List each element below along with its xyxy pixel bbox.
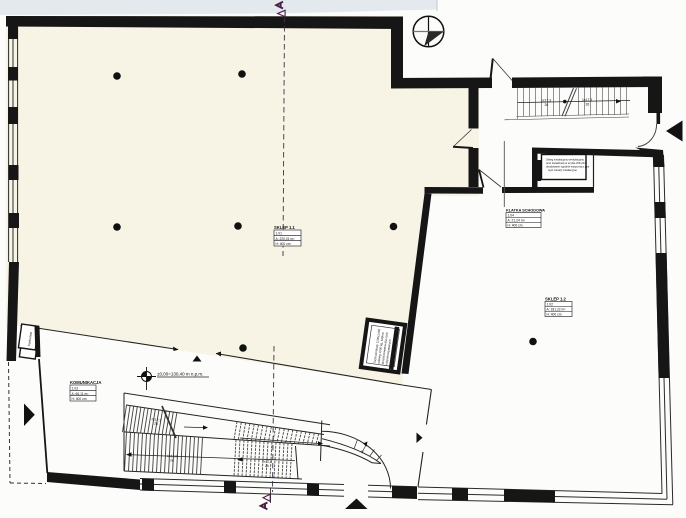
svg-text:KOMUNIKACJA: KOMUNIKACJA xyxy=(70,380,101,385)
svg-text:A: 21,24 m²: A: 21,24 m² xyxy=(508,219,526,223)
svg-text:1.02: 1.02 xyxy=(547,303,554,307)
svg-text:A: 181,22 m²: A: 181,22 m² xyxy=(547,308,567,312)
svg-text:A: 220,01 m²: A: 220,01 m² xyxy=(276,237,296,241)
svg-text:SKLEP 1.1: SKLEP 1.1 xyxy=(274,225,296,230)
svg-text:H: 400 cm: H: 400 cm xyxy=(276,242,291,246)
svg-text:26: 26 xyxy=(265,464,269,468)
svg-text:26: 26 xyxy=(586,103,590,107)
svg-text:1.04: 1.04 xyxy=(508,214,515,218)
svg-text:1.01: 1.01 xyxy=(276,232,283,236)
svg-text:26: 26 xyxy=(545,103,549,107)
svg-text:1x17,3: 1x17,3 xyxy=(541,99,551,103)
svg-text:SKLEP 1.2: SKLEP 1.2 xyxy=(545,297,567,302)
svg-text:A: 66,11 m²: A: 66,11 m² xyxy=(72,392,90,396)
svg-text:obudowane zgodnie wytyczna p.p: obudowane zgodnie wytyczna p.poz xyxy=(546,165,590,169)
svg-text:26: 26 xyxy=(154,422,158,427)
svg-text:oraz kanalizacji w szybie WK-2: oraz kanalizacji w szybie WK-20.0 xyxy=(546,161,587,165)
svg-text:26: 26 xyxy=(170,459,174,463)
svg-text:KLATKA SCHODOWA: KLATKA SCHODOWA xyxy=(506,209,545,213)
svg-text:1x17,3: 1x17,3 xyxy=(582,98,592,102)
svg-text:wyd. kanaly instalacyjne: wyd. kanaly instalacyjne xyxy=(548,168,577,172)
svg-text:H: 400 cm: H: 400 cm xyxy=(508,224,523,228)
svg-text:1.03: 1.03 xyxy=(72,387,79,391)
svg-text:Obieg instalacyjny wentylacyjn: Obieg instalacyjny wentylacyjny xyxy=(546,158,584,162)
svg-text:±0,00=130,40 m n.p.m.: ±0,00=130,40 m n.p.m. xyxy=(157,372,203,377)
svg-text:H: 400 cm: H: 400 cm xyxy=(547,313,562,317)
svg-text:H: 400 cm: H: 400 cm xyxy=(72,397,87,401)
